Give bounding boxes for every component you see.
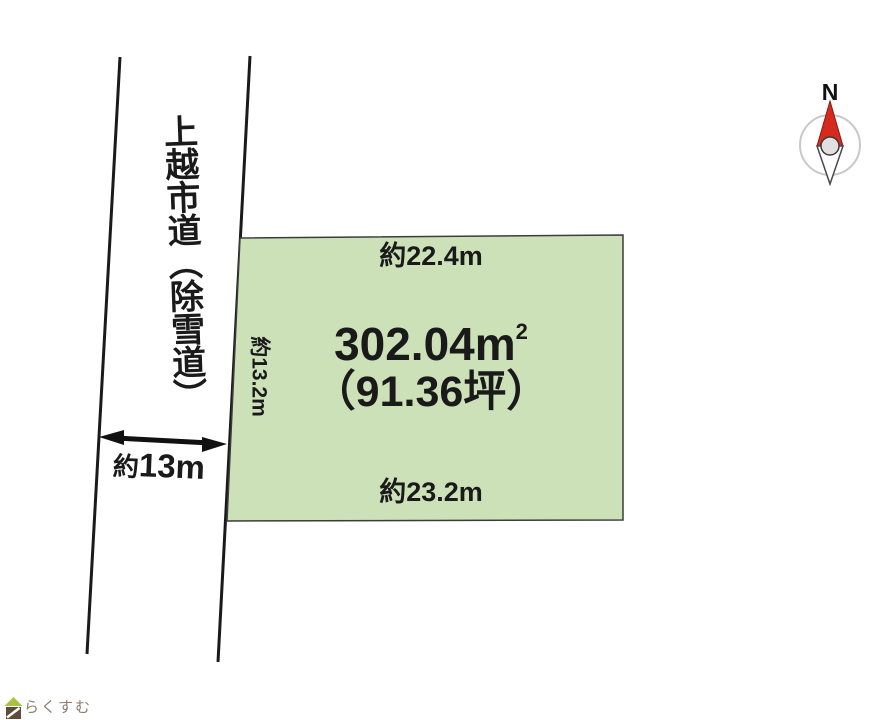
road-width-value: 13m <box>138 446 206 486</box>
parcel-area-tsubo: （91.36坪） <box>256 371 606 414</box>
compass-north-label: N <box>815 81 845 104</box>
parcel-area-exponent: 2 <box>516 319 528 344</box>
road-width-about: 約 <box>112 451 139 482</box>
logo-text: らくすむ <box>24 700 92 715</box>
compass-hub <box>821 137 839 155</box>
compass <box>800 101 860 184</box>
parcel-area-sqm: 302.04m2 <box>281 321 581 367</box>
parcel-area-unit: m <box>475 318 516 370</box>
road-width-label: 約13m <box>95 446 222 484</box>
parcel-area-value: 302.04 <box>334 318 475 370</box>
land-plot-diagram: 上越市道（除雪道） 約13m 約22.4m 約23.2m 約13.2m 302.… <box>0 0 878 720</box>
parcel-bottom-dimension: 約23.2m <box>331 479 531 506</box>
road-left-edge-line <box>87 57 120 654</box>
parcel-top-dimension: 約22.4m <box>331 243 531 270</box>
logo-house-icon <box>5 697 23 719</box>
